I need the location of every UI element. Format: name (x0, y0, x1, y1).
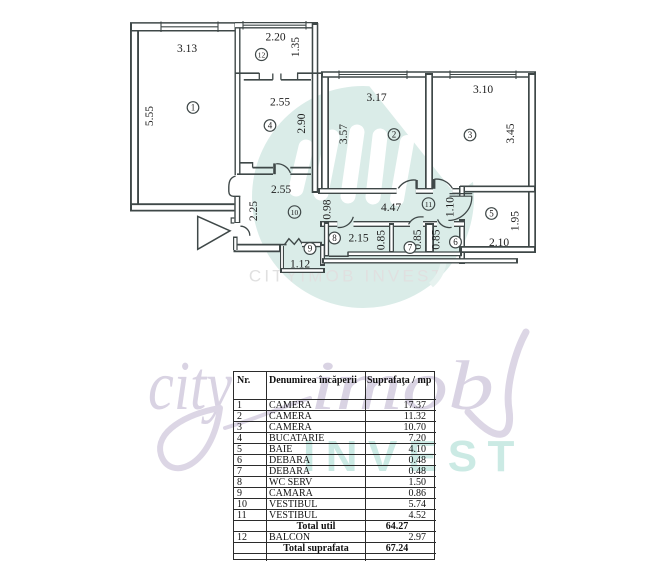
svg-text:6: 6 (453, 237, 458, 247)
svg-text:1.95: 1.95 (510, 211, 522, 231)
svg-text:12: 12 (258, 50, 266, 59)
svg-text:3: 3 (468, 130, 473, 140)
svg-text:2.90: 2.90 (296, 113, 308, 133)
svg-text:2.25: 2.25 (248, 201, 260, 221)
svg-text:0.98: 0.98 (322, 199, 334, 219)
svg-text:3.10: 3.10 (473, 84, 493, 96)
svg-text:1.12: 1.12 (290, 259, 310, 271)
svg-text:4: 4 (268, 121, 273, 131)
svg-text:0.85: 0.85 (431, 229, 443, 249)
svg-text:7: 7 (408, 243, 413, 253)
svg-text:2.20: 2.20 (266, 32, 286, 44)
svg-text:2.15: 2.15 (348, 233, 368, 245)
svg-text:1.10: 1.10 (445, 197, 457, 217)
svg-text:5.55: 5.55 (144, 106, 156, 126)
svg-text:3.45: 3.45 (505, 123, 517, 143)
svg-text:1: 1 (191, 103, 196, 113)
svg-text:5: 5 (489, 209, 494, 219)
svg-text:8: 8 (332, 233, 337, 243)
svg-text:4.47: 4.47 (381, 202, 401, 214)
svg-text:2.55: 2.55 (271, 184, 291, 196)
svg-text:2.10: 2.10 (489, 237, 509, 249)
svg-text:3.17: 3.17 (366, 92, 386, 104)
svg-text:1.35: 1.35 (290, 37, 302, 57)
svg-text:CITYIMOB INVEST: CITYIMOB INVEST (249, 267, 445, 286)
svg-text:9: 9 (308, 244, 313, 254)
svg-text:3.57: 3.57 (338, 124, 350, 144)
svg-text:0.85: 0.85 (376, 230, 388, 250)
svg-text:2.55: 2.55 (270, 97, 290, 109)
svg-text:2: 2 (392, 130, 397, 140)
svg-text:10: 10 (291, 208, 299, 217)
svg-text:3.13: 3.13 (177, 43, 197, 55)
svg-text:11: 11 (425, 200, 432, 209)
